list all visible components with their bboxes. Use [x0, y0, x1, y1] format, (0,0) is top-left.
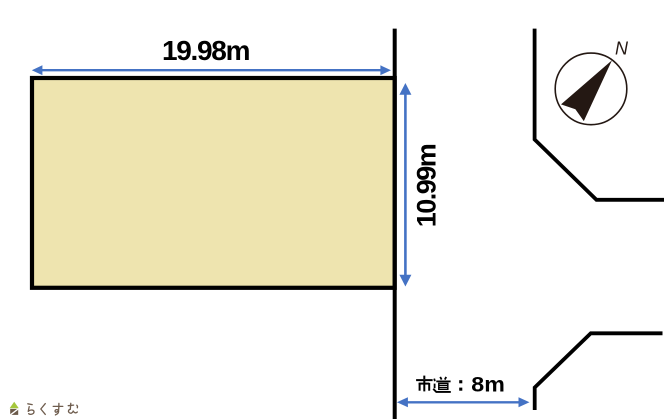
- svg-text:19.98m: 19.98m: [162, 35, 250, 66]
- svg-text:10.99m: 10.99m: [411, 144, 441, 227]
- svg-text:N: N: [615, 39, 629, 59]
- svg-text:8m: 8m: [471, 372, 505, 396]
